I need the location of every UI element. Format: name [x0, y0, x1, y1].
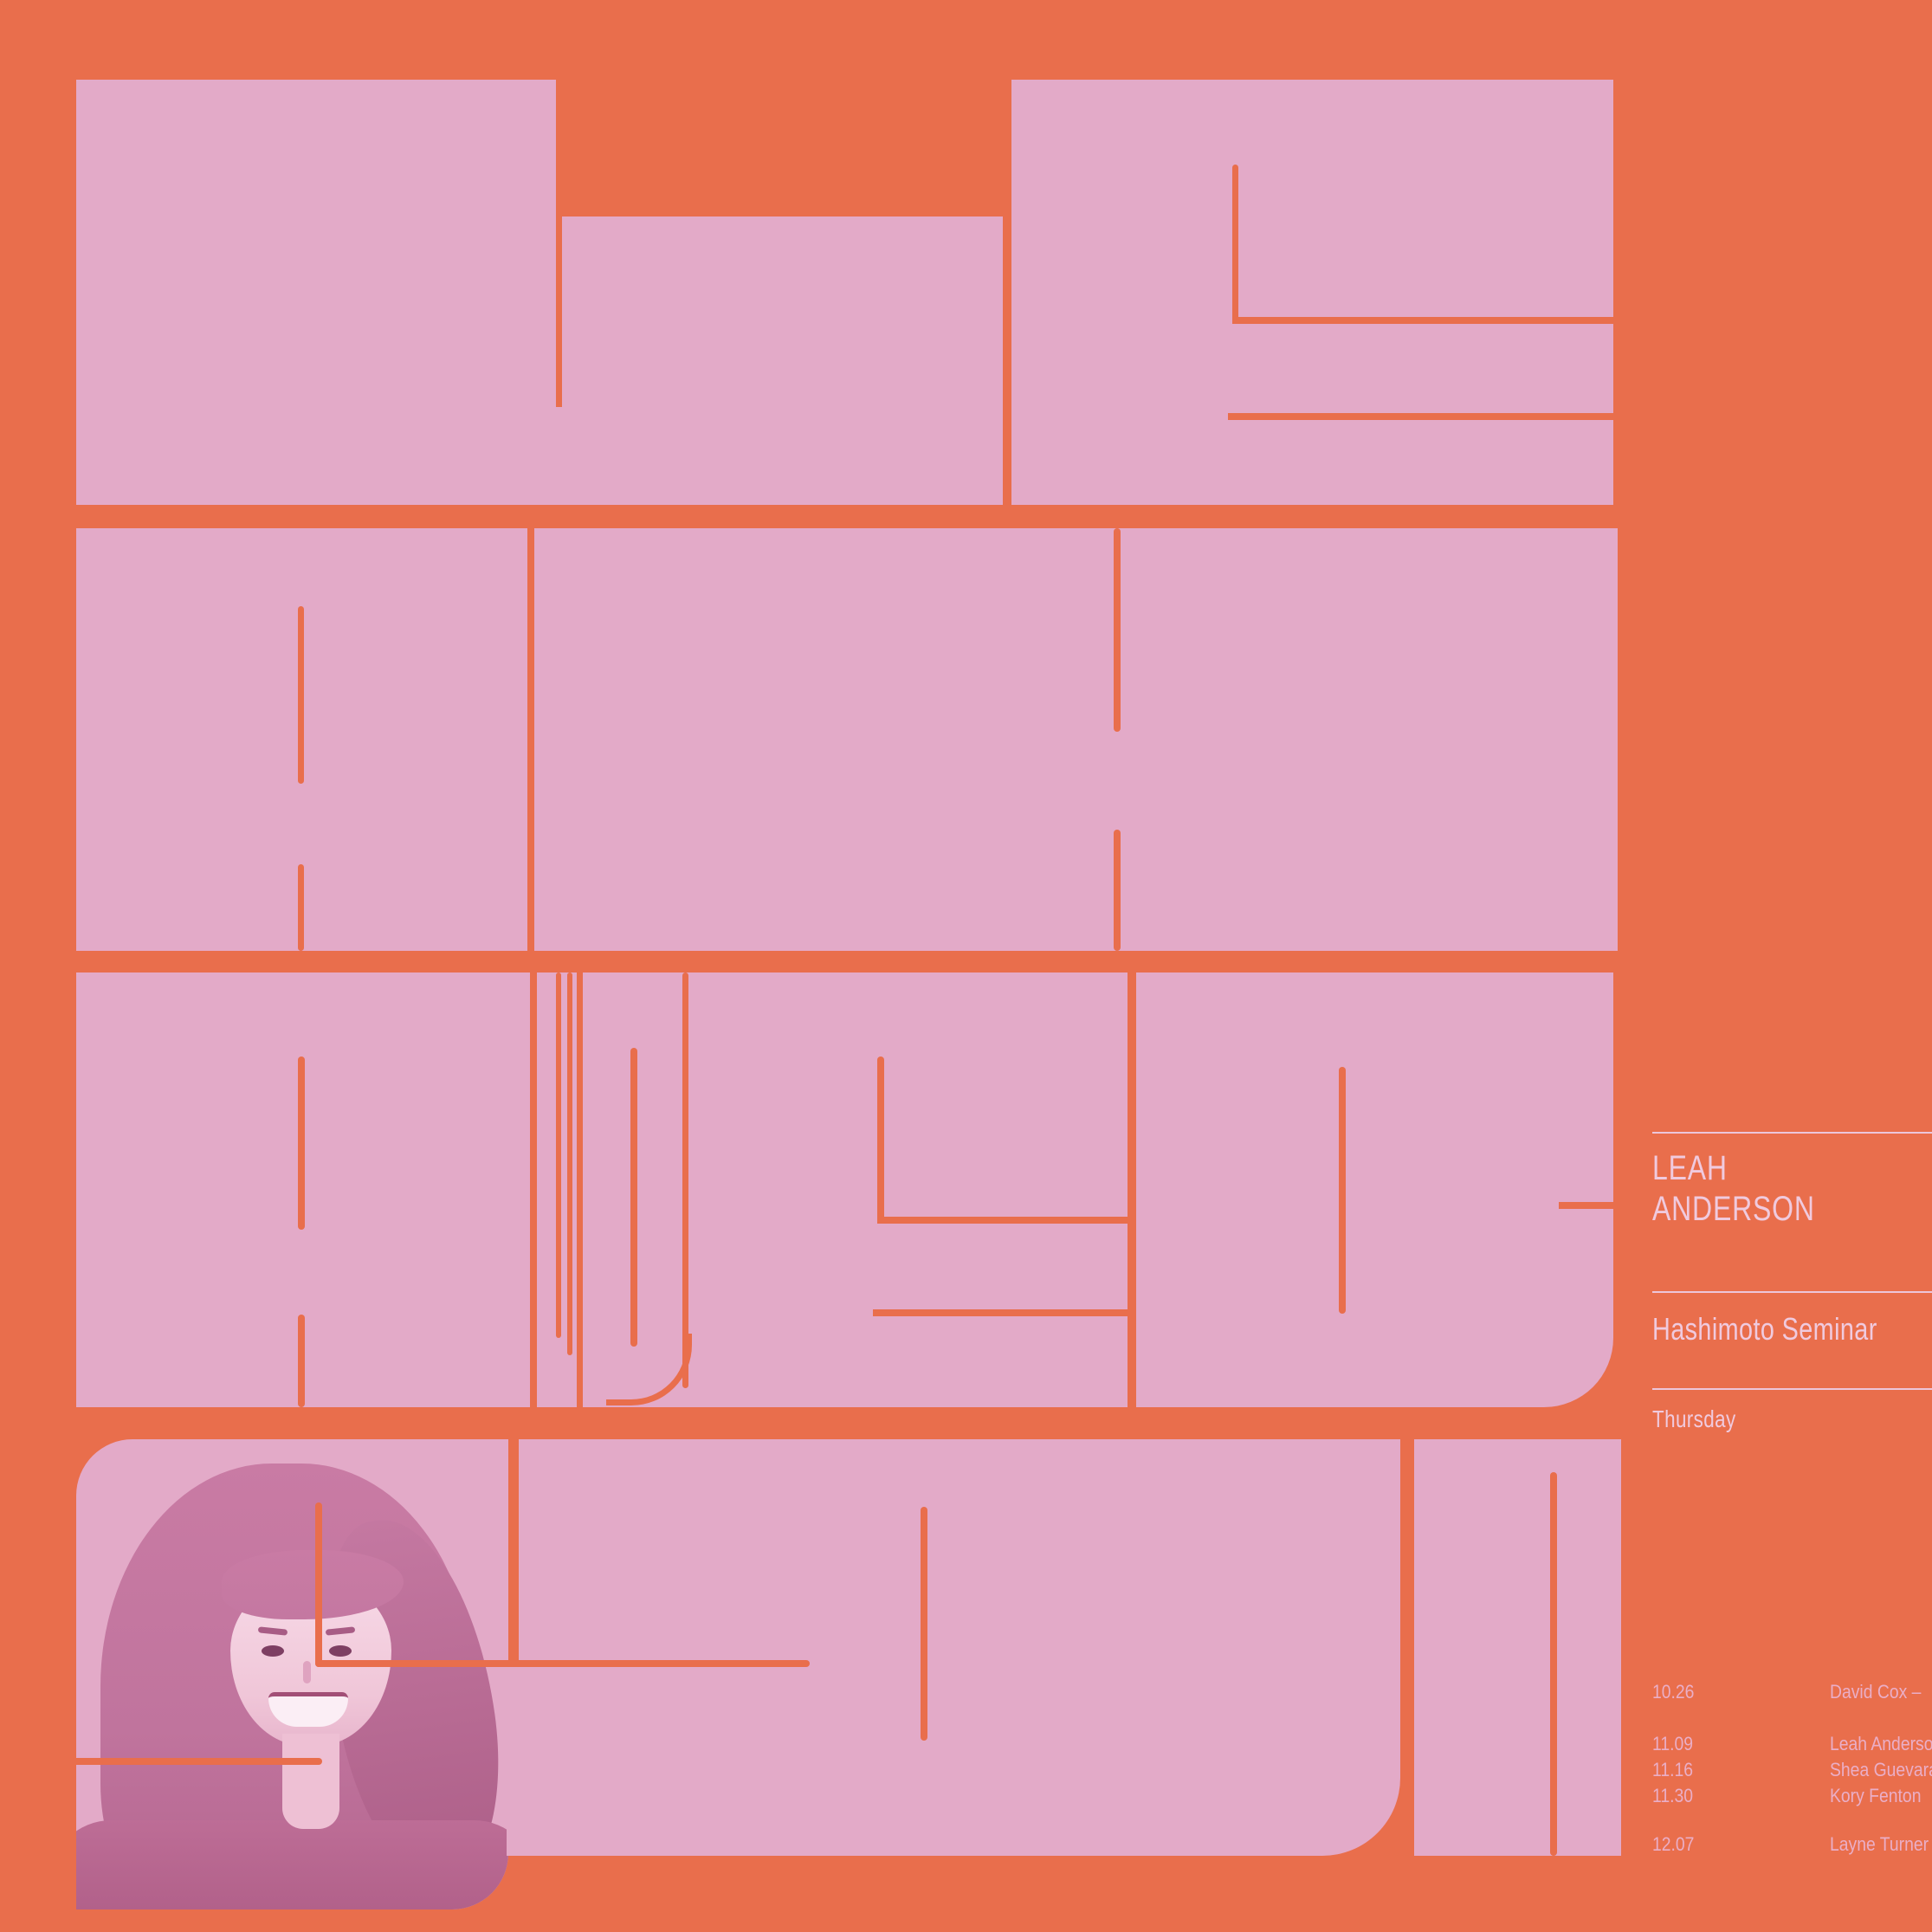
schedule-date: 11.09 [1652, 1733, 1693, 1755]
schedule-row: 10.26 David Cox – [1652, 1681, 1932, 1703]
schedule-row: 11.09 Leah Anderson [1652, 1733, 1932, 1755]
letter-A1-slit-upper [298, 606, 304, 784]
letter-S-slit-low [76, 1758, 322, 1765]
schedule-name: Kory Fenton [1830, 1785, 1921, 1807]
letter-S-slit-mid [315, 1660, 810, 1667]
panel-rule-3 [1652, 1388, 1932, 1390]
letter-R-block [1136, 972, 1613, 1407]
photo-eye-right [329, 1645, 352, 1657]
letter-E1-block [1011, 80, 1613, 505]
schedule-row: 11.30 Kory Fenton [1652, 1785, 1932, 1807]
schedule-name: Shea Guevara [1830, 1759, 1932, 1781]
speaker-name-line2: ANDERSON [1652, 1189, 1815, 1230]
event-title: Hashimoto Seminar [1652, 1311, 1932, 1347]
letter-A1-slit-lower [298, 864, 304, 951]
letter-E2-slit-vertical [877, 1056, 884, 1221]
photo-nose [303, 1661, 311, 1683]
letter-D-counter [630, 1048, 637, 1347]
letter-N2-slit [1550, 1472, 1557, 1856]
letter-O-counter [921, 1507, 927, 1741]
speaker-name-line1: LEAH [1652, 1148, 1728, 1189]
schedule-row: 11.16 Shea Guevara [1652, 1759, 1932, 1781]
speaker-name: LEAH ANDERSON [1652, 1148, 1856, 1230]
letter-E2-slit-h1 [877, 1217, 1128, 1224]
letter-E1-slit-vertical [1232, 165, 1238, 320]
photo-neck [282, 1734, 339, 1829]
letter-N1-line-b [567, 972, 572, 1355]
letter-H-slit-top [1114, 528, 1121, 732]
poster-headline-text: LEAH ANDERSON [0, 0, 1, 1]
schedule-date: 11.30 [1652, 1785, 1693, 1807]
schedule-name: Layne Turner [1830, 1833, 1929, 1856]
schedule-name: Leah Anderson [1830, 1733, 1932, 1755]
event-day: Thursday [1652, 1405, 1757, 1433]
letter-E2-slit-h2 [873, 1309, 1128, 1316]
letter-N1-line-a [556, 972, 561, 1338]
schedule-date: 12.07 [1652, 1833, 1694, 1856]
schedule-row: 12.07 Layne Turner [1652, 1833, 1932, 1856]
speaker-photo [76, 1439, 508, 1909]
letter-D-left-line [577, 972, 583, 1407]
photo-eye-left [262, 1645, 284, 1657]
photo-shoulders [76, 1820, 508, 1909]
letter-L-bridge [554, 407, 565, 505]
letter-A2-slit-lower [298, 1315, 305, 1407]
letter-R-slit-vertical [1339, 1067, 1346, 1314]
letter-A2-slit-upper [298, 1056, 305, 1230]
schedule-name: David Cox – [1830, 1681, 1921, 1703]
letter-S-block [76, 1439, 508, 1909]
schedule-date: 11.16 [1652, 1759, 1693, 1781]
panel-rule-1 [1652, 1132, 1932, 1134]
letter-E1-slit-h2 [1228, 413, 1613, 420]
letter-S-spine [315, 1502, 322, 1667]
letter-L-stem [76, 80, 556, 505]
panel-rule-2 [1652, 1291, 1932, 1293]
poster-canvas: LEAH ANDERSON [0, 0, 1932, 1932]
letter-D-right-line [682, 972, 688, 1388]
letter-O-block [519, 1439, 1400, 1856]
letter-H-block [534, 528, 1618, 951]
letter-N2-block [1414, 1439, 1621, 1856]
schedule-date: 10.26 [1652, 1681, 1694, 1703]
letter-H-slit-bottom [1114, 830, 1121, 951]
letter-E1-slit-h1 [1232, 317, 1613, 324]
letter-R-notch [1559, 1202, 1613, 1209]
letter-L-foot [562, 216, 1003, 505]
